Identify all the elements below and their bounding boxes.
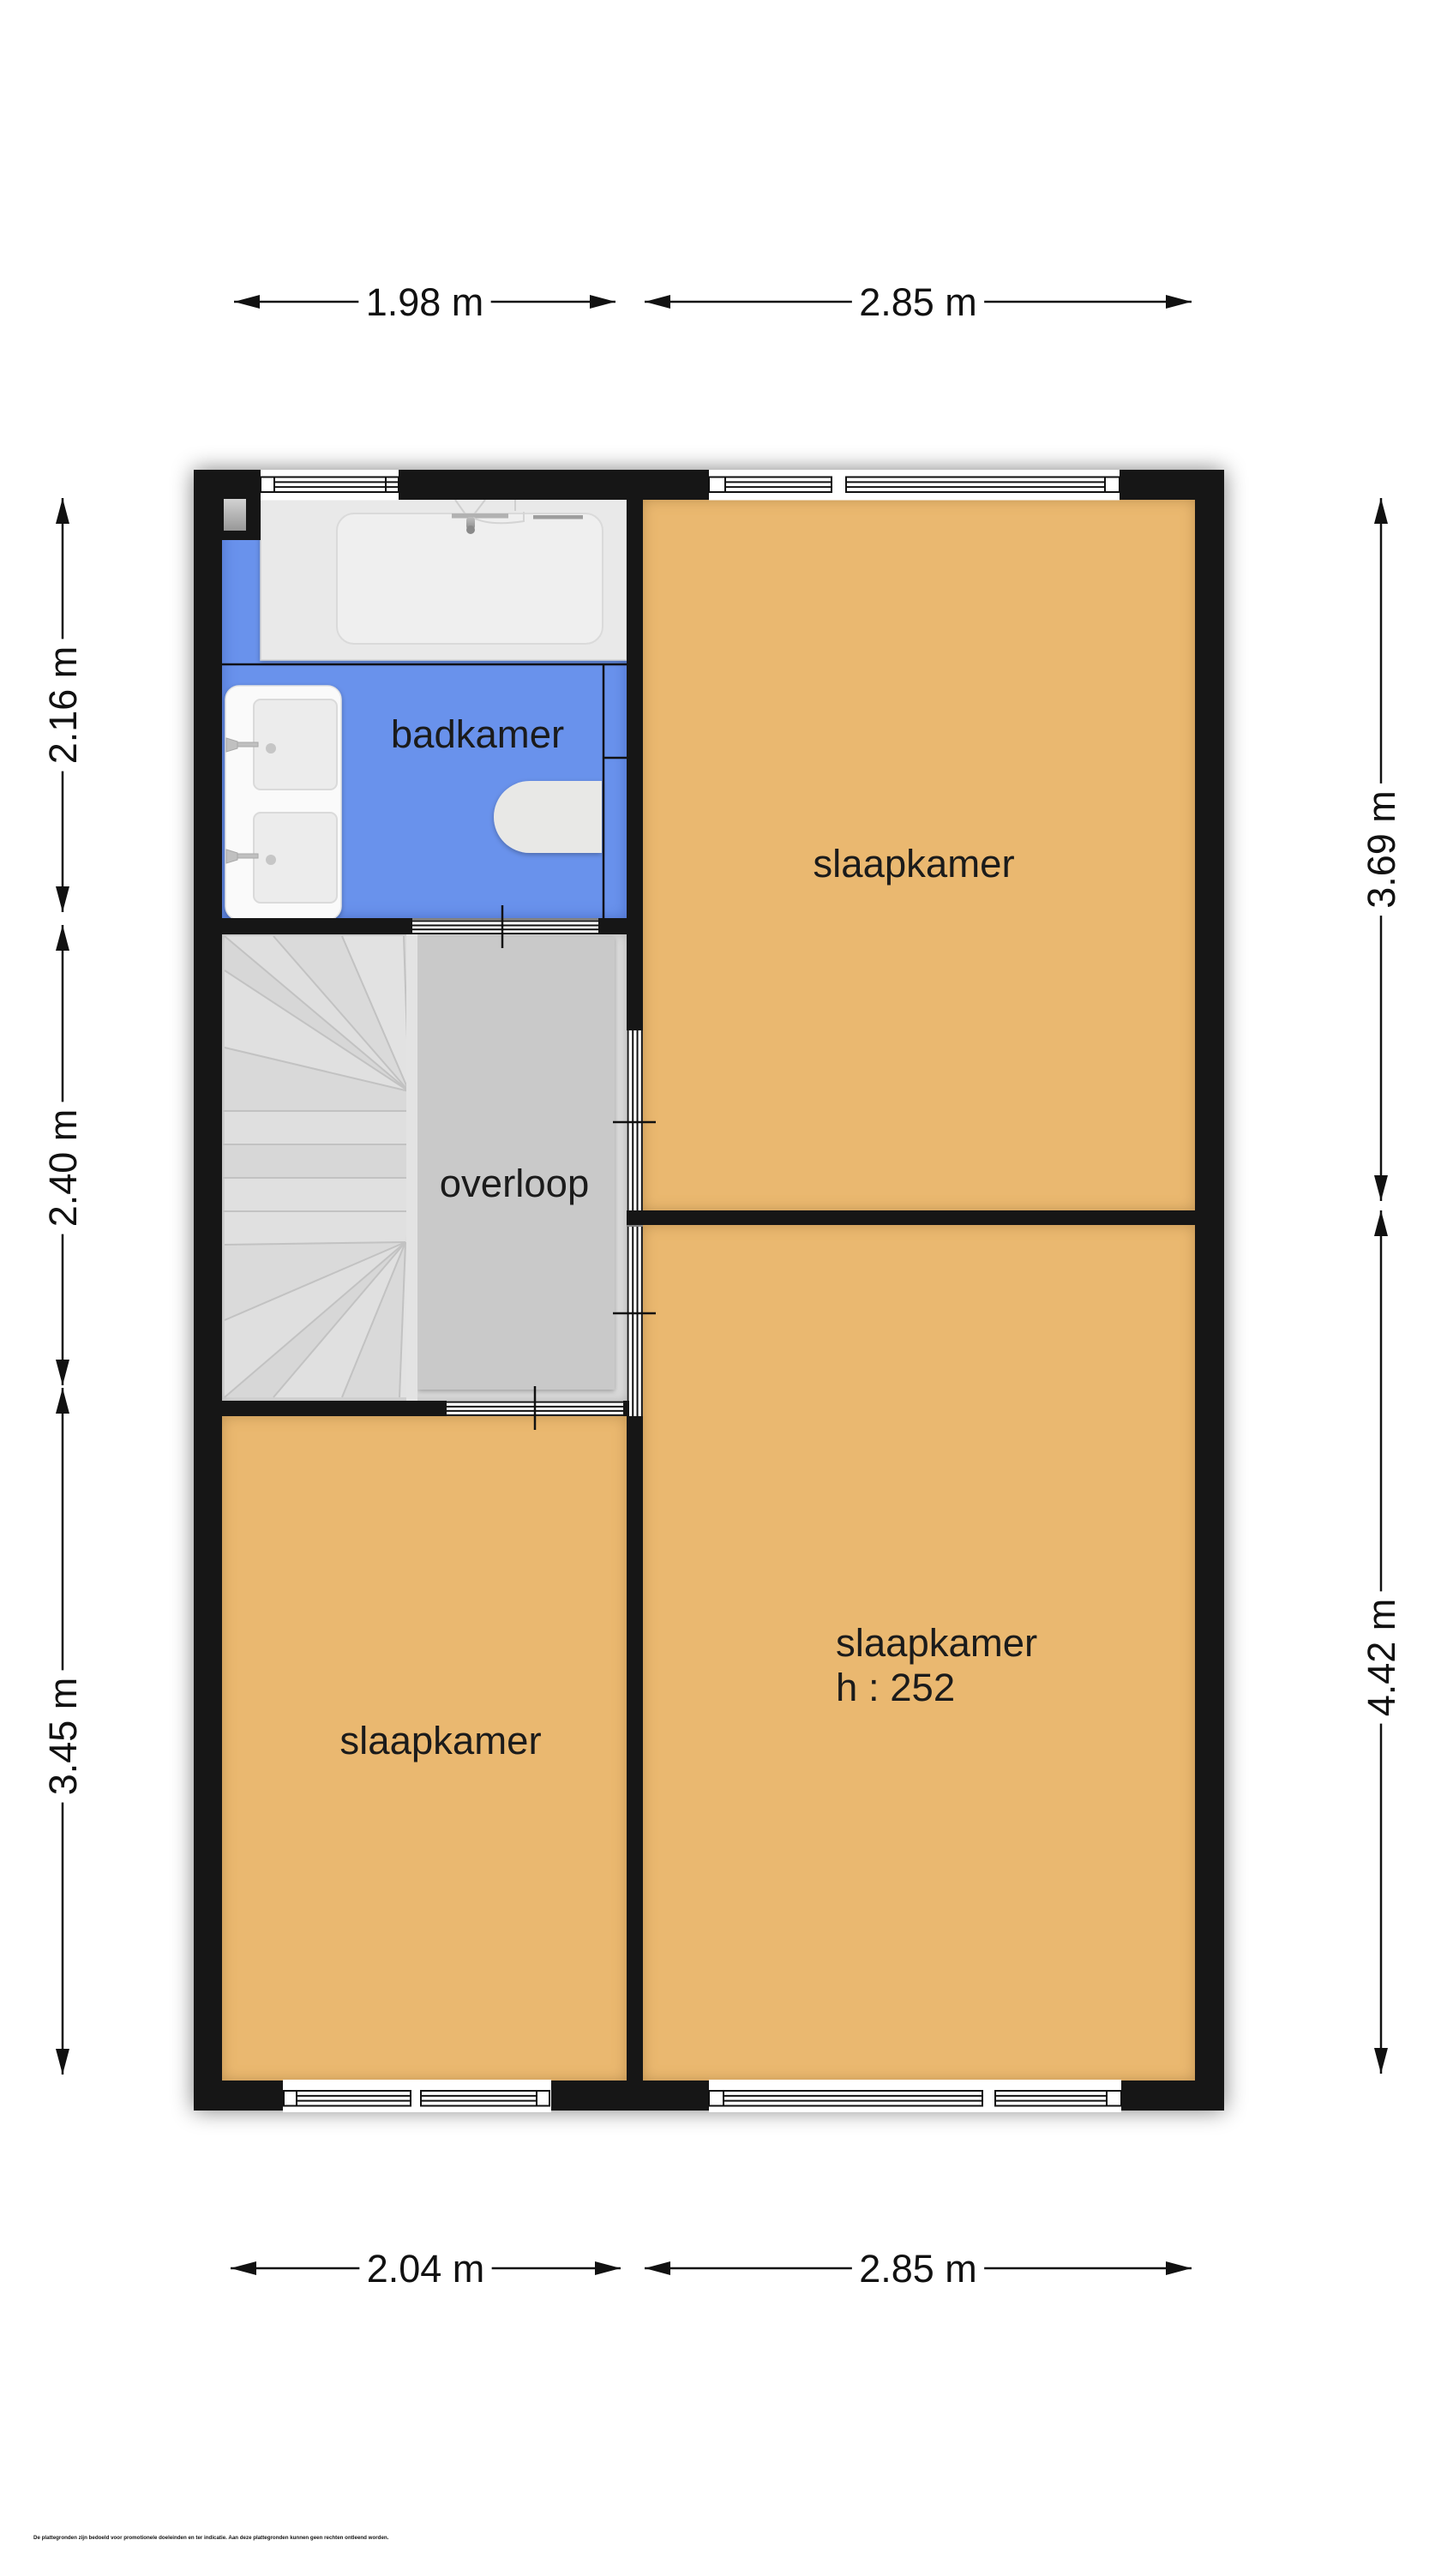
svg-text:slaapkamer: slaapkamer — [813, 842, 1014, 886]
svg-text:overloop: overloop — [440, 1162, 590, 1205]
svg-text:3.45 m: 3.45 m — [41, 1678, 85, 1796]
svg-text:h : 252: h : 252 — [836, 1666, 955, 1709]
svg-text:slaapkamer: slaapkamer — [339, 1719, 541, 1762]
svg-text:badkamer: badkamer — [391, 712, 564, 756]
svg-text:4.42 m: 4.42 m — [1360, 1599, 1403, 1717]
svg-text:3.69 m: 3.69 m — [1360, 790, 1403, 909]
svg-text:2.04 m: 2.04 m — [367, 2247, 485, 2291]
svg-text:2.85 m: 2.85 m — [859, 280, 977, 324]
svg-text:2.40 m: 2.40 m — [41, 1109, 85, 1228]
svg-text:2.16 m: 2.16 m — [41, 646, 85, 765]
svg-text:2.85 m: 2.85 m — [859, 2247, 977, 2291]
svg-text:slaapkamer: slaapkamer — [836, 1621, 1037, 1665]
svg-text:1.98 m: 1.98 m — [366, 280, 484, 324]
svg-text:De plattegronden zijn bedoeld: De plattegronden zijn bedoeld voor promo… — [33, 2535, 389, 2541]
